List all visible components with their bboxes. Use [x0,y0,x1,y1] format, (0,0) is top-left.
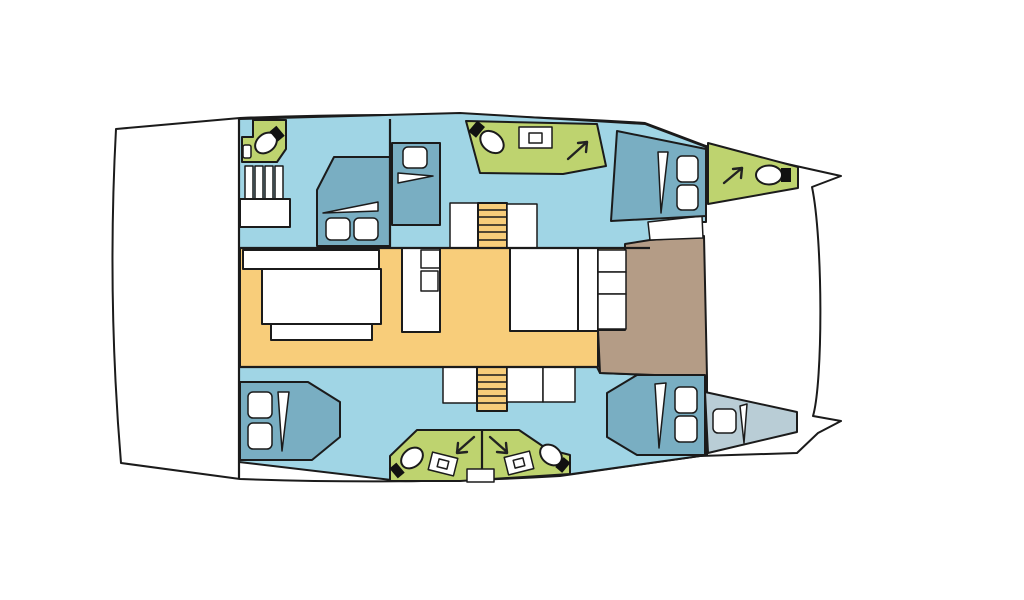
galley-port-unit [402,248,440,332]
sink-icon [519,127,552,148]
pillow [677,156,698,182]
pillow [248,392,272,418]
pillow [675,387,697,413]
port-cabinet [240,199,290,227]
stair-landing [443,367,477,403]
stair-landing [507,367,543,402]
heads-door [467,469,494,482]
pillow [675,416,697,442]
sink-icon [243,145,251,158]
pillow [713,409,736,433]
saloon-table [262,269,381,324]
stair-landing [543,367,575,402]
stair-landing [507,204,537,248]
settee-bench [271,324,372,340]
stair-landing [450,203,478,248]
pillow [354,218,378,240]
pillow [326,218,350,240]
pillow [403,147,427,168]
floor-plan-canvas [0,0,1024,600]
settee-back [243,250,379,269]
pillow [677,185,698,210]
pillow [248,423,272,449]
toilet-icon [756,166,791,185]
toilet-tank [781,168,791,182]
boat-floor-plan [0,0,1024,600]
galley-starboard-unit [510,248,626,331]
